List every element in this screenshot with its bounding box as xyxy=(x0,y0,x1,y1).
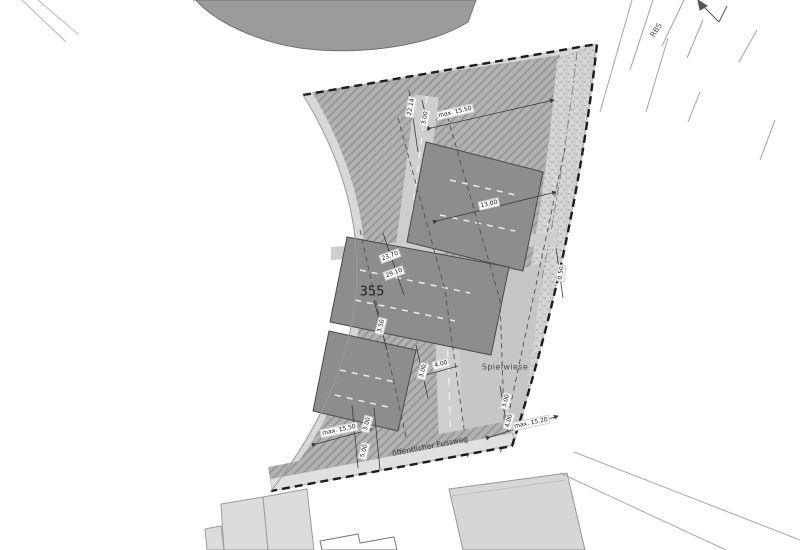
dimension-label-top-depth: 22.14 xyxy=(405,96,418,119)
dimension-label-bottom-left-b: 5.00 xyxy=(357,441,370,460)
dimension-label-bottom-left-a: 3.00 xyxy=(360,414,373,433)
dimension-label-mid-path-b: 4.00 xyxy=(431,357,450,370)
dimension-label-left-setback: 3.50 xyxy=(374,316,387,335)
dimension-label-bottom-right-a: 3.00 xyxy=(499,391,512,410)
dimension-label-right-strip: 0.50 xyxy=(555,264,566,282)
parcel-number-label: 355 xyxy=(360,285,385,300)
dimension-label-mid-path-a: 3.00 xyxy=(416,361,429,380)
site-plan: RBS max. 15.50 22.14 3.00 13.00 23.70 29… xyxy=(0,0,800,550)
dimension-label-left-length-a: 23.70 xyxy=(379,248,402,264)
footpath-label: öffentlicher Fussweg xyxy=(391,434,468,458)
dimension-label-bottom-left-max-height: max. 15.50 xyxy=(319,422,358,439)
dimension-label-left-length-b: 29.10 xyxy=(383,265,406,281)
playfield-label: Spielwiese xyxy=(482,363,528,372)
dimension-label-center-width: 13.00 xyxy=(478,197,501,211)
dimension-label-top-setback: 3.00 xyxy=(419,109,431,128)
railway-label: RBS xyxy=(648,21,664,38)
dimension-label-top-max-height: max. 15.50 xyxy=(435,103,474,120)
label-layer: RBS max. 15.50 22.14 3.00 13.00 23.70 29… xyxy=(0,0,800,550)
dimension-label-bottom-right-max-height: max. 15.20 xyxy=(511,415,550,432)
